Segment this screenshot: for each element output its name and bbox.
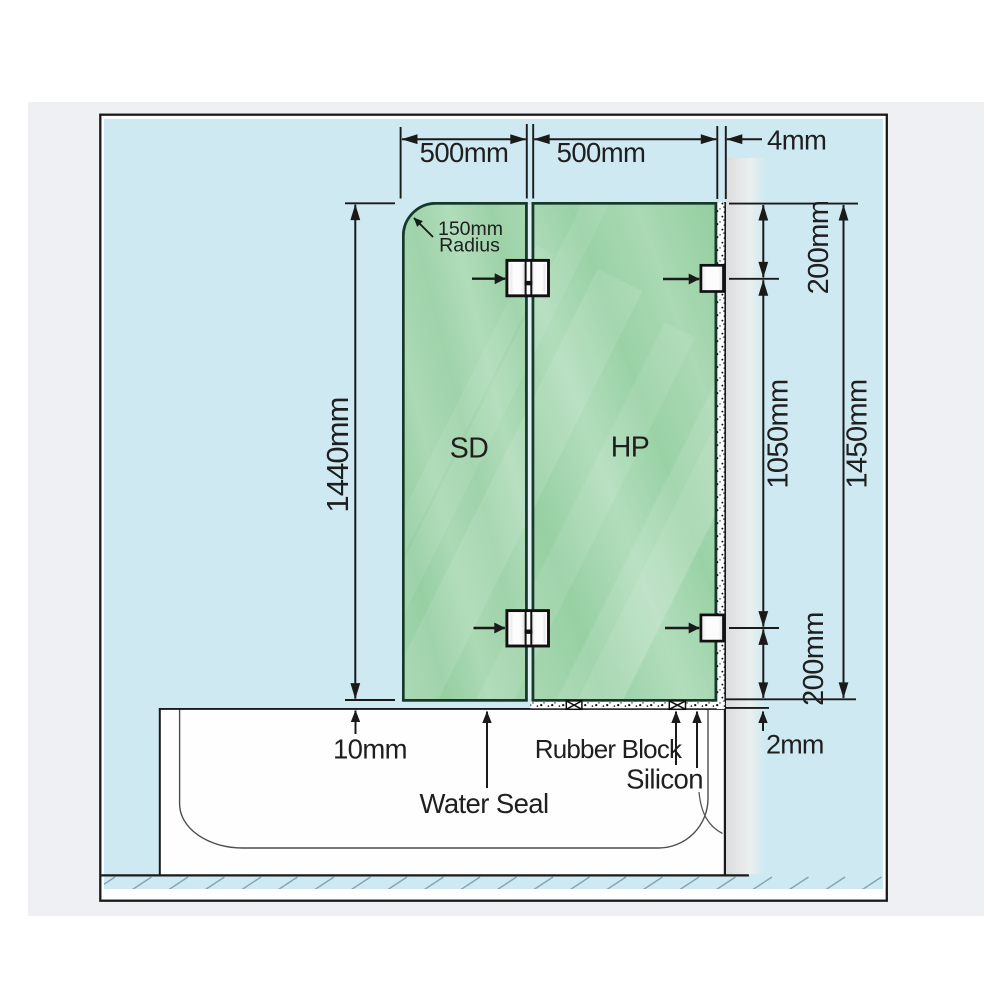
svg-text:1440mm: 1440mm [320, 397, 355, 512]
svg-text:SD: SD [450, 433, 489, 465]
svg-text:Radius: Radius [439, 235, 500, 257]
svg-text:200mm: 200mm [803, 201, 835, 295]
svg-text:500mm: 500mm [420, 137, 509, 168]
svg-text:Rubber Block: Rubber Block [535, 734, 683, 764]
svg-text:2mm: 2mm [766, 730, 824, 760]
svg-text:200mm: 200mm [798, 612, 830, 706]
svg-text:500mm: 500mm [557, 137, 646, 168]
svg-text:Water Seal: Water Seal [419, 788, 548, 819]
svg-text:1450mm: 1450mm [842, 379, 874, 488]
svg-text:Silicon: Silicon [626, 764, 703, 795]
svg-text:HP: HP [611, 432, 650, 464]
svg-text:10mm: 10mm [333, 734, 407, 765]
svg-text:1050mm: 1050mm [763, 379, 795, 488]
svg-text:4mm: 4mm [767, 125, 826, 156]
